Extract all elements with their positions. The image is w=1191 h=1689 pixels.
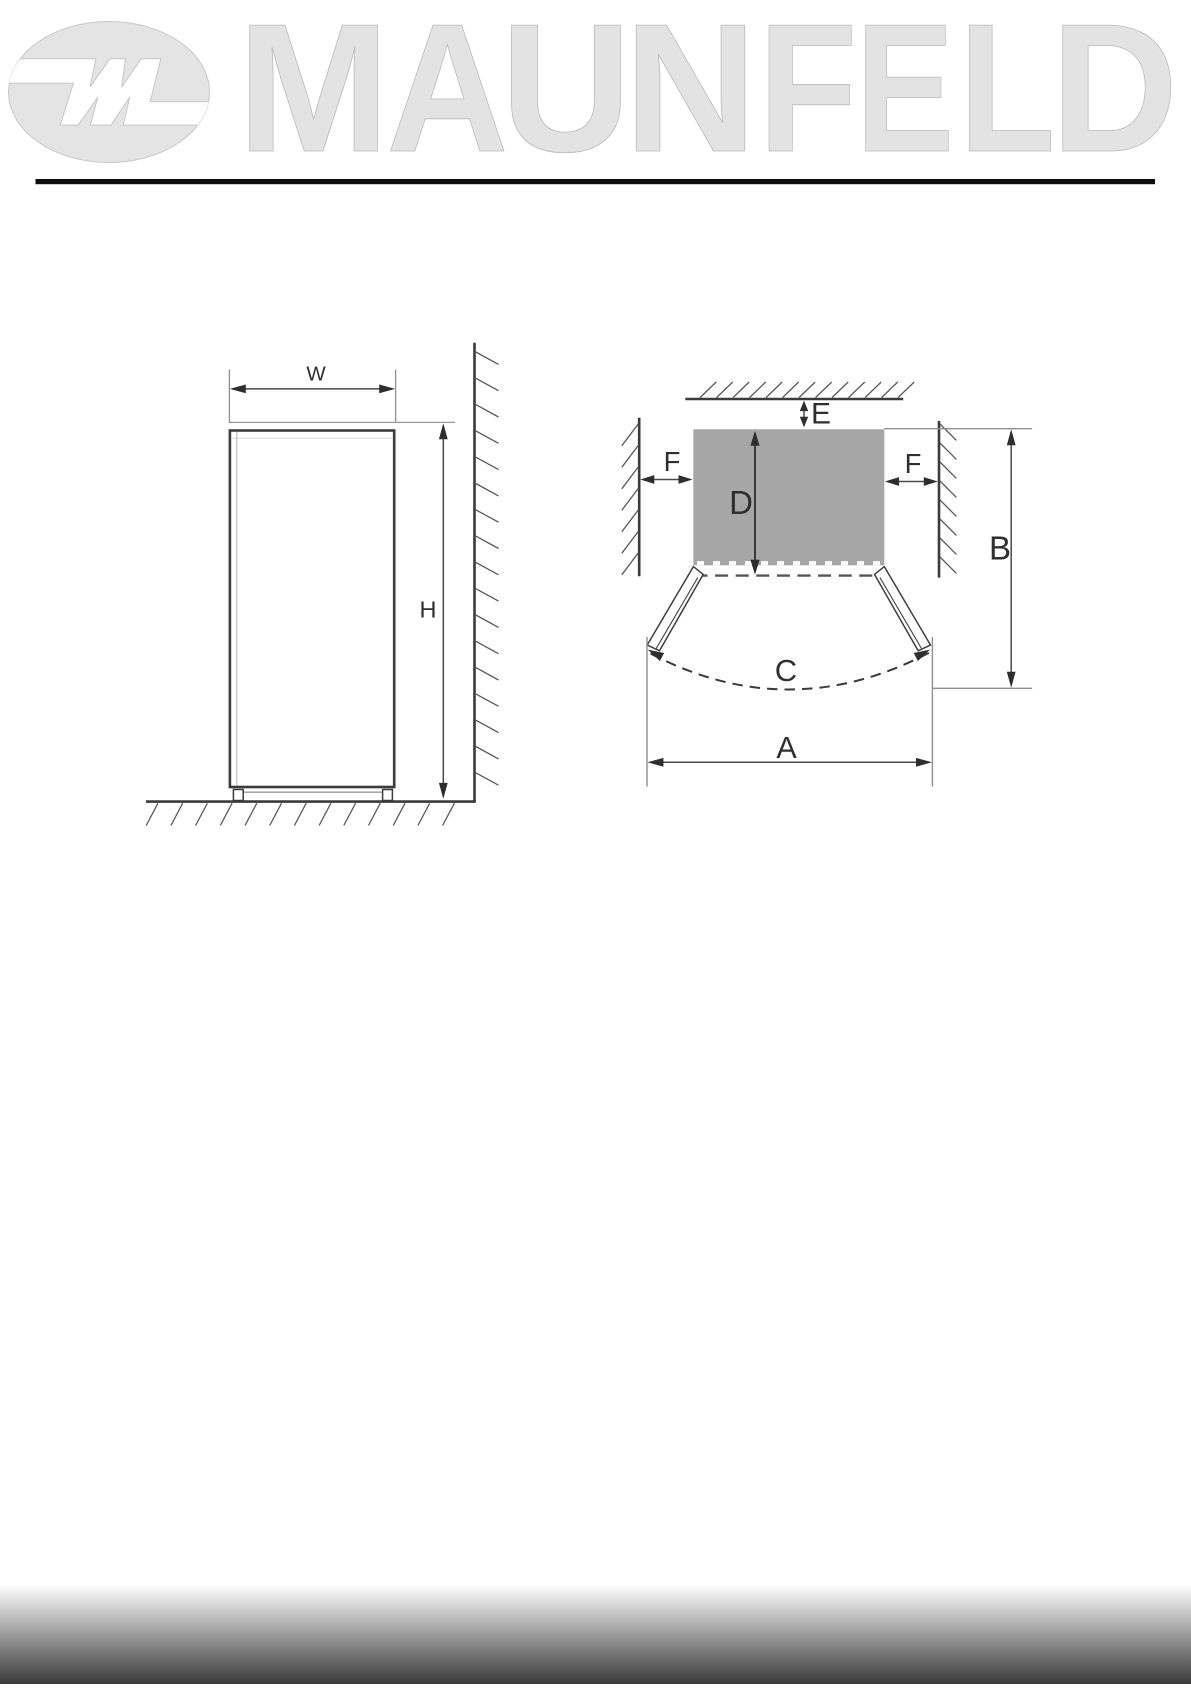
svg-text:D: D — [1051, 0, 1178, 191]
svg-text:U: U — [501, 0, 632, 190]
svg-text:A: A — [386, 0, 508, 190]
svg-text:L: L — [959, 0, 1056, 191]
svg-text:F: F — [758, 0, 857, 190]
svg-text:C: C — [775, 653, 797, 688]
svg-text:D: D — [729, 484, 753, 521]
svg-text:B: B — [989, 529, 1011, 566]
svg-text:H: H — [420, 597, 437, 623]
svg-text:N: N — [624, 0, 757, 190]
svg-text:M: M — [238, 0, 390, 190]
svg-text:E: E — [856, 0, 955, 191]
svg-text:W: W — [306, 362, 326, 385]
svg-text:F: F — [664, 446, 681, 477]
svg-text:E: E — [811, 397, 831, 430]
svg-text:F: F — [905, 448, 922, 479]
svg-text:A: A — [776, 731, 797, 765]
